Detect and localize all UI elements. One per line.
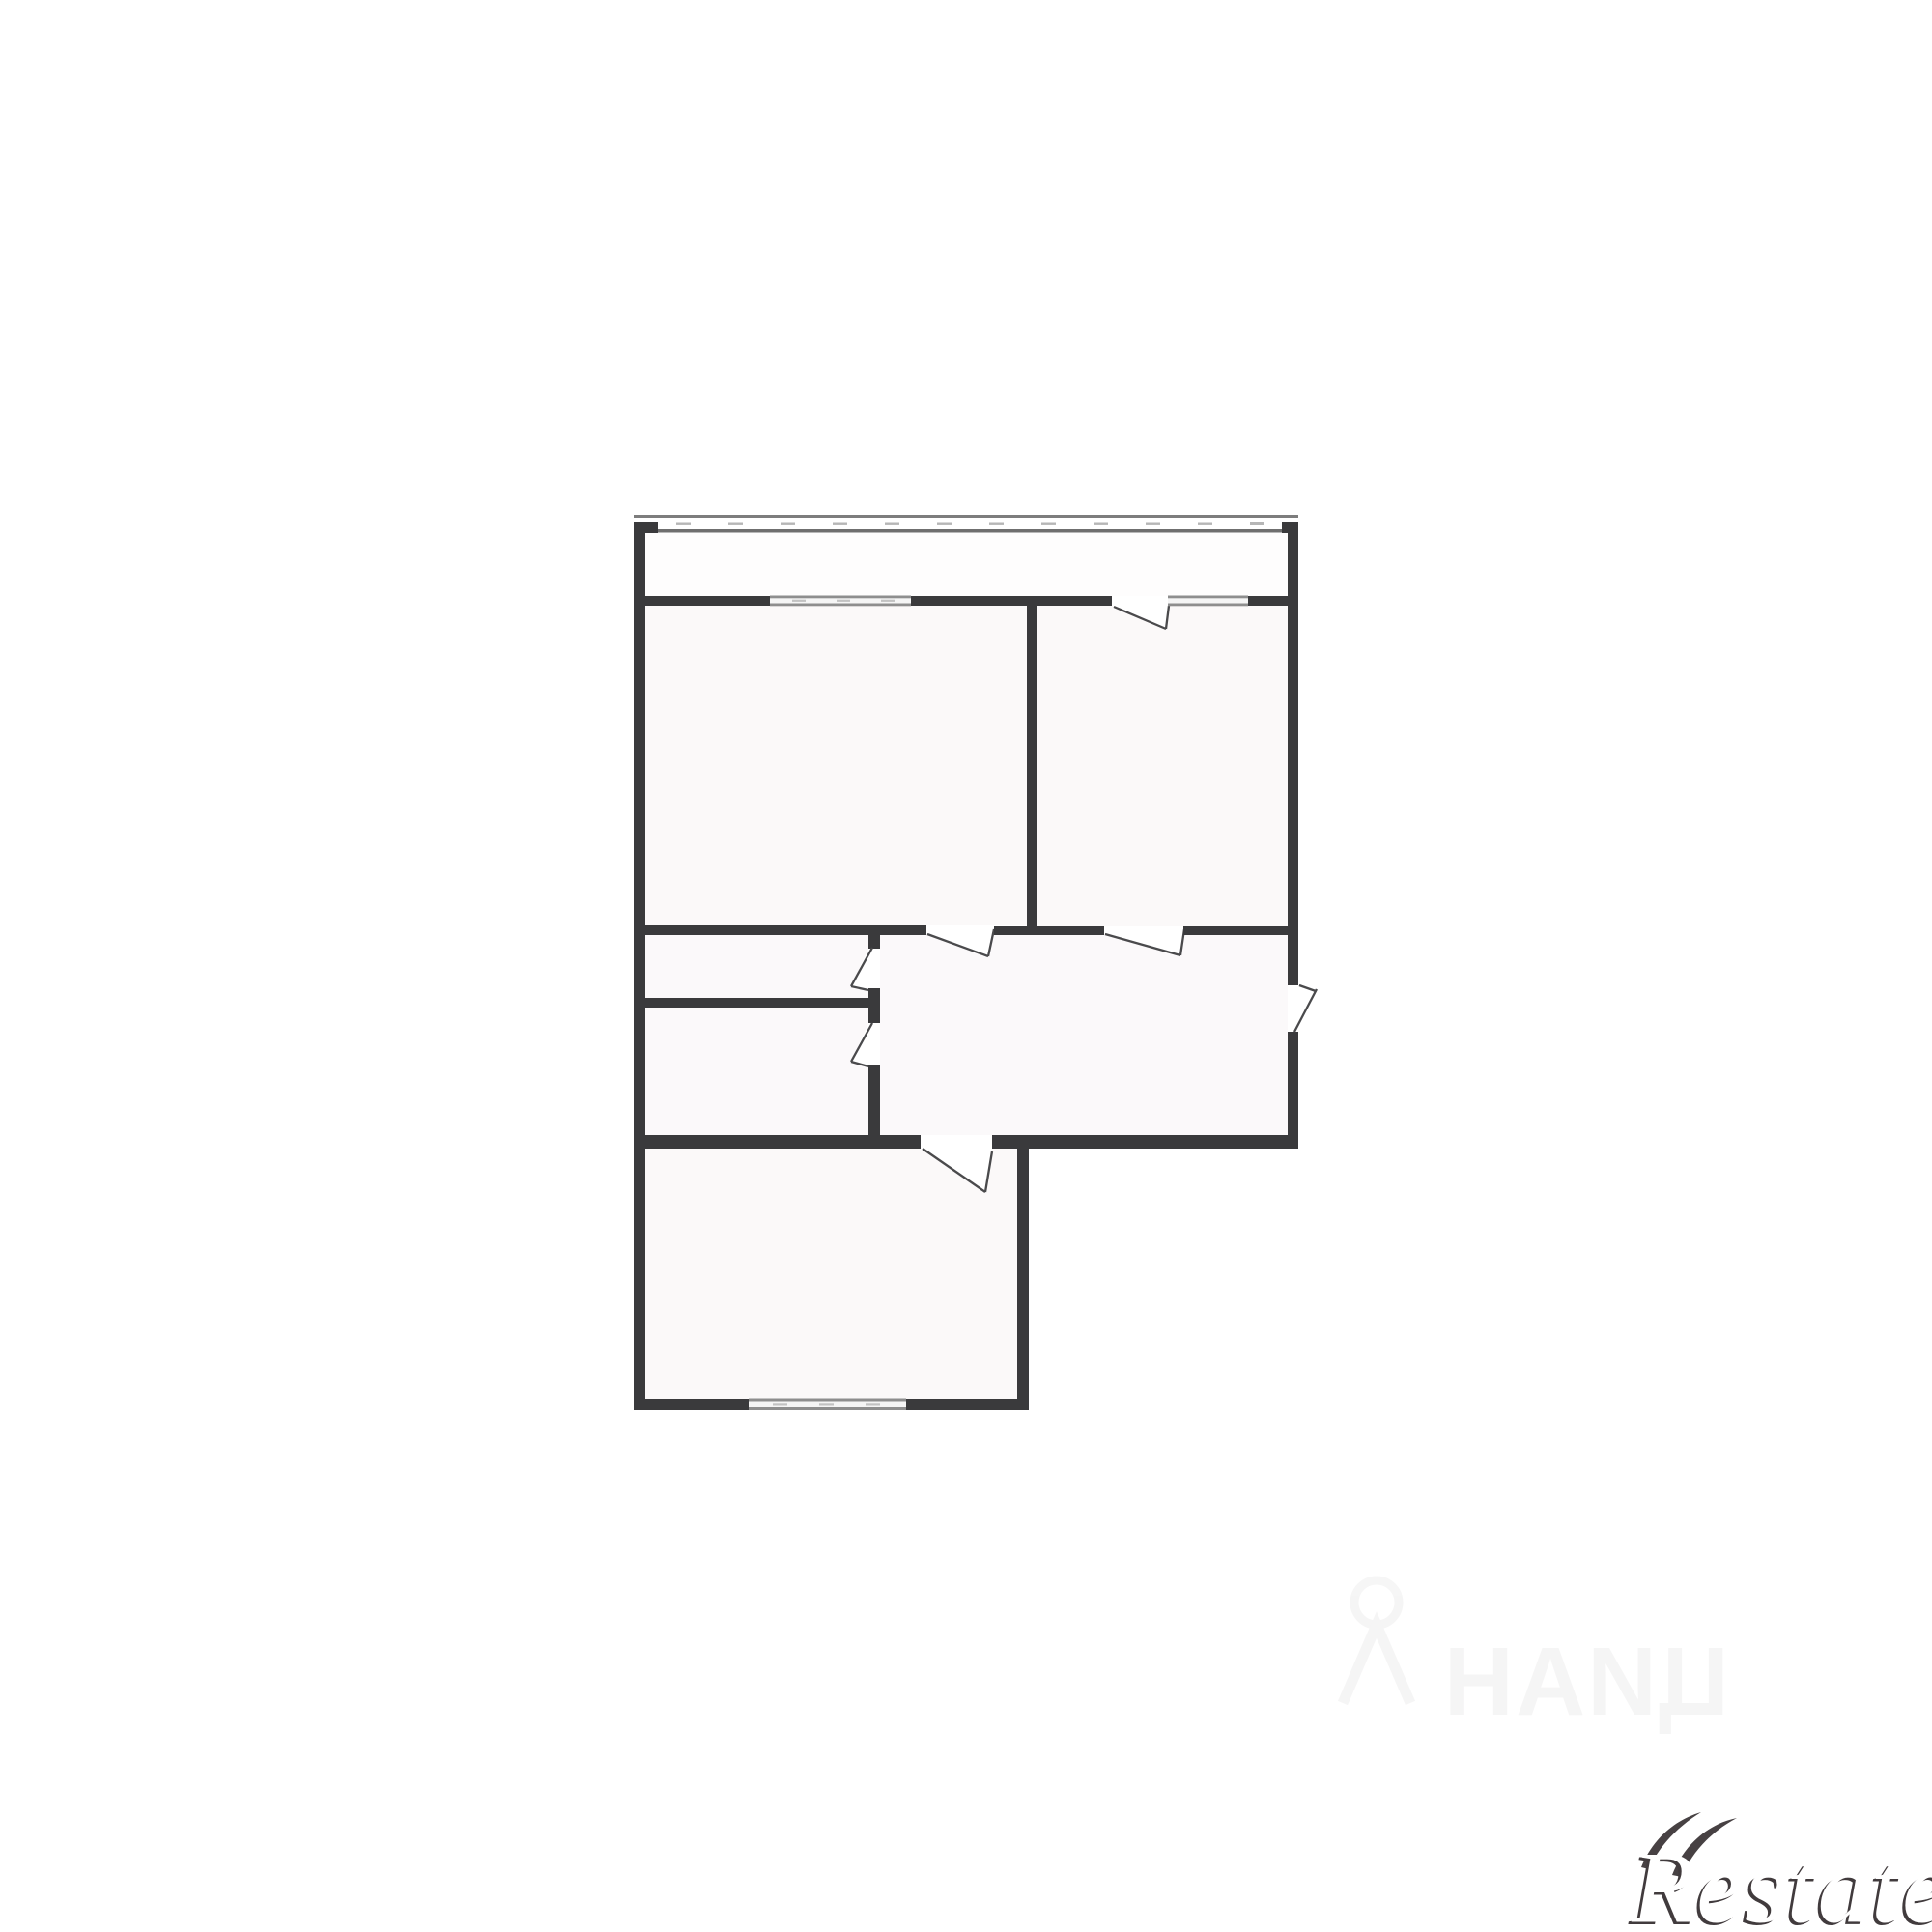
svg-text:Restate: Restate	[1631, 1832, 1932, 1932]
svg-text:ЦИАН: ЦИАН	[1442, 1628, 1729, 1736]
